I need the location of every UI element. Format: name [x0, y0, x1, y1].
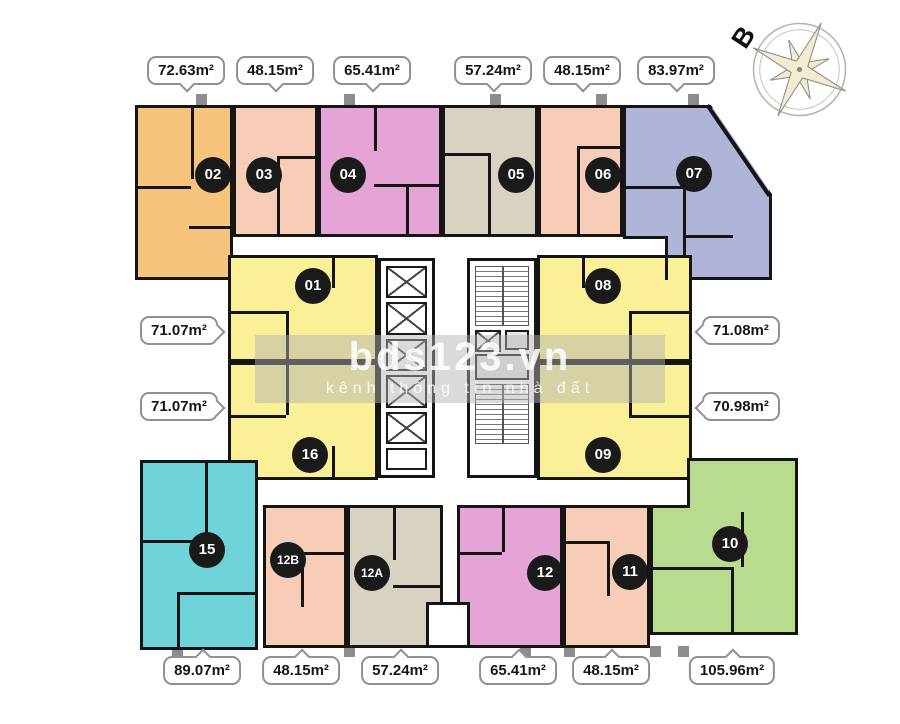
unit-12B[interactable]: 12B [263, 505, 347, 648]
unit-12-badge: 12 [527, 555, 563, 591]
compass-rose-icon [742, 12, 857, 127]
interior-wall [683, 235, 733, 238]
unit-12[interactable]: 12 [457, 505, 563, 648]
interior-wall [629, 311, 632, 359]
interior-wall [191, 108, 194, 179]
interior-wall [629, 365, 632, 415]
technical-room [475, 354, 529, 380]
door-mark [490, 94, 501, 105]
area-label-unit-02: 72.63m² [147, 56, 225, 85]
unit-10-badge: 10 [712, 526, 748, 562]
area-label-unit-04: 65.41m² [333, 56, 411, 85]
elevator-cell [386, 266, 427, 298]
unit-15[interactable]: 15 [140, 460, 258, 650]
interior-wall [488, 153, 491, 234]
elevator-core [378, 258, 435, 478]
elevator-cell [386, 375, 427, 407]
interior-wall [607, 541, 610, 596]
unit-05[interactable]: 05 [442, 105, 538, 237]
unit-08-badge: 08 [585, 268, 621, 304]
interior-wall [286, 365, 289, 415]
interior-wall [629, 311, 689, 314]
interior-wall [731, 567, 734, 632]
interior-wall [374, 108, 377, 151]
interior-wall [406, 184, 409, 234]
unit-06[interactable]: 06 [538, 105, 623, 237]
area-label-unit-12B: 48.15m² [262, 656, 340, 685]
unit-01[interactable]: 01 [228, 255, 378, 362]
unit-16-badge: 16 [292, 437, 328, 473]
pointer [695, 399, 712, 416]
unit-03-badge: 03 [246, 157, 282, 193]
floorplan-canvas: 02 03 04 05 06 07 01 16 [0, 0, 900, 724]
interior-wall [566, 541, 607, 544]
interior-wall [629, 415, 689, 418]
wall [623, 236, 668, 239]
unit-03[interactable]: 03 [233, 105, 318, 237]
pointer [208, 399, 225, 416]
compass: B [742, 12, 857, 127]
elevator-cell [386, 412, 427, 444]
unit-09[interactable]: 09 [537, 362, 692, 480]
interior-wall [277, 156, 315, 159]
unit-05-badge: 05 [498, 157, 534, 193]
elevator-cell [386, 339, 427, 371]
pointer [695, 323, 712, 340]
unit-04[interactable]: 04 [318, 105, 442, 237]
area-label-unit-03: 48.15m² [236, 56, 314, 85]
door-mark [678, 646, 689, 657]
area-value: 71.07m² [151, 322, 207, 339]
area-value: 70.98m² [713, 398, 769, 415]
wall [665, 238, 668, 280]
door-mark [688, 94, 699, 105]
wall [650, 505, 690, 508]
unit-01-badge: 01 [295, 268, 331, 304]
shaft-cell [475, 330, 501, 352]
interior-wall [286, 311, 289, 359]
unit-15-badge: 15 [189, 532, 225, 568]
door-mark [196, 94, 207, 105]
interior-wall [231, 415, 286, 418]
interior-wall [577, 146, 580, 234]
area-label-unit-12: 65.41m² [479, 656, 557, 685]
area-label-unit-05: 57.24m² [454, 56, 532, 85]
unit-12B-badge: 12B [270, 542, 306, 578]
area-value: 71.08m² [713, 322, 769, 339]
interior-wall [189, 226, 230, 229]
door-mark [596, 94, 607, 105]
unit-09-badge: 09 [585, 437, 621, 473]
lobby-room [426, 602, 470, 648]
interior-wall [205, 463, 208, 540]
door-mark [344, 94, 355, 105]
unit-06-badge: 06 [585, 157, 621, 193]
area-label-unit-09: 70.98m² [702, 392, 780, 421]
stair-flight [475, 384, 529, 444]
area-label-unit-15: 89.07m² [163, 656, 241, 685]
area-label-unit-10: 105.96m² [689, 656, 775, 685]
unit-11-badge: 11 [612, 554, 648, 590]
interior-wall [653, 567, 731, 570]
interior-wall [445, 153, 488, 156]
interior-wall [231, 311, 286, 314]
interior-wall [502, 508, 505, 552]
unit-12A-badge: 12A [354, 555, 390, 591]
door-mark [650, 646, 661, 657]
unit-02-badge: 02 [195, 157, 231, 193]
unit-04-badge: 04 [330, 157, 366, 193]
interior-wall [177, 592, 180, 647]
interior-wall [393, 508, 396, 560]
elevator-cell [386, 302, 427, 334]
unit-07-badge: 07 [676, 156, 712, 192]
wall [687, 458, 690, 508]
area-label-unit-01: 71.07m² [140, 316, 218, 345]
pointer [208, 323, 225, 340]
area-label-unit-06: 48.15m² [543, 56, 621, 85]
area-label-unit-16: 71.07m² [140, 392, 218, 421]
interior-wall [577, 146, 620, 149]
stair-core [467, 258, 537, 478]
area-label-unit-12A: 57.24m² [361, 656, 439, 685]
technical-room [505, 330, 529, 350]
area-label-unit-08: 71.08m² [702, 316, 780, 345]
interior-wall [393, 585, 440, 588]
service-cell [386, 448, 427, 470]
area-label-unit-11: 48.15m² [572, 656, 650, 685]
interior-wall [626, 186, 683, 189]
area-value: 71.07m² [151, 398, 207, 415]
stair-flight [475, 266, 529, 326]
area-label-unit-07: 83.97m² [637, 56, 715, 85]
interior-wall [138, 186, 191, 189]
unit-02[interactable]: 02 [135, 105, 233, 280]
interior-wall [177, 592, 255, 595]
unit-10[interactable]: 10 [650, 458, 798, 635]
interior-wall [332, 446, 335, 477]
unit-07[interactable]: 07 [623, 105, 772, 280]
interior-wall [460, 552, 502, 555]
unit-08[interactable]: 08 [537, 255, 692, 362]
interior-wall [332, 258, 335, 288]
unit-11[interactable]: 11 [563, 505, 650, 648]
interior-wall [301, 552, 344, 555]
